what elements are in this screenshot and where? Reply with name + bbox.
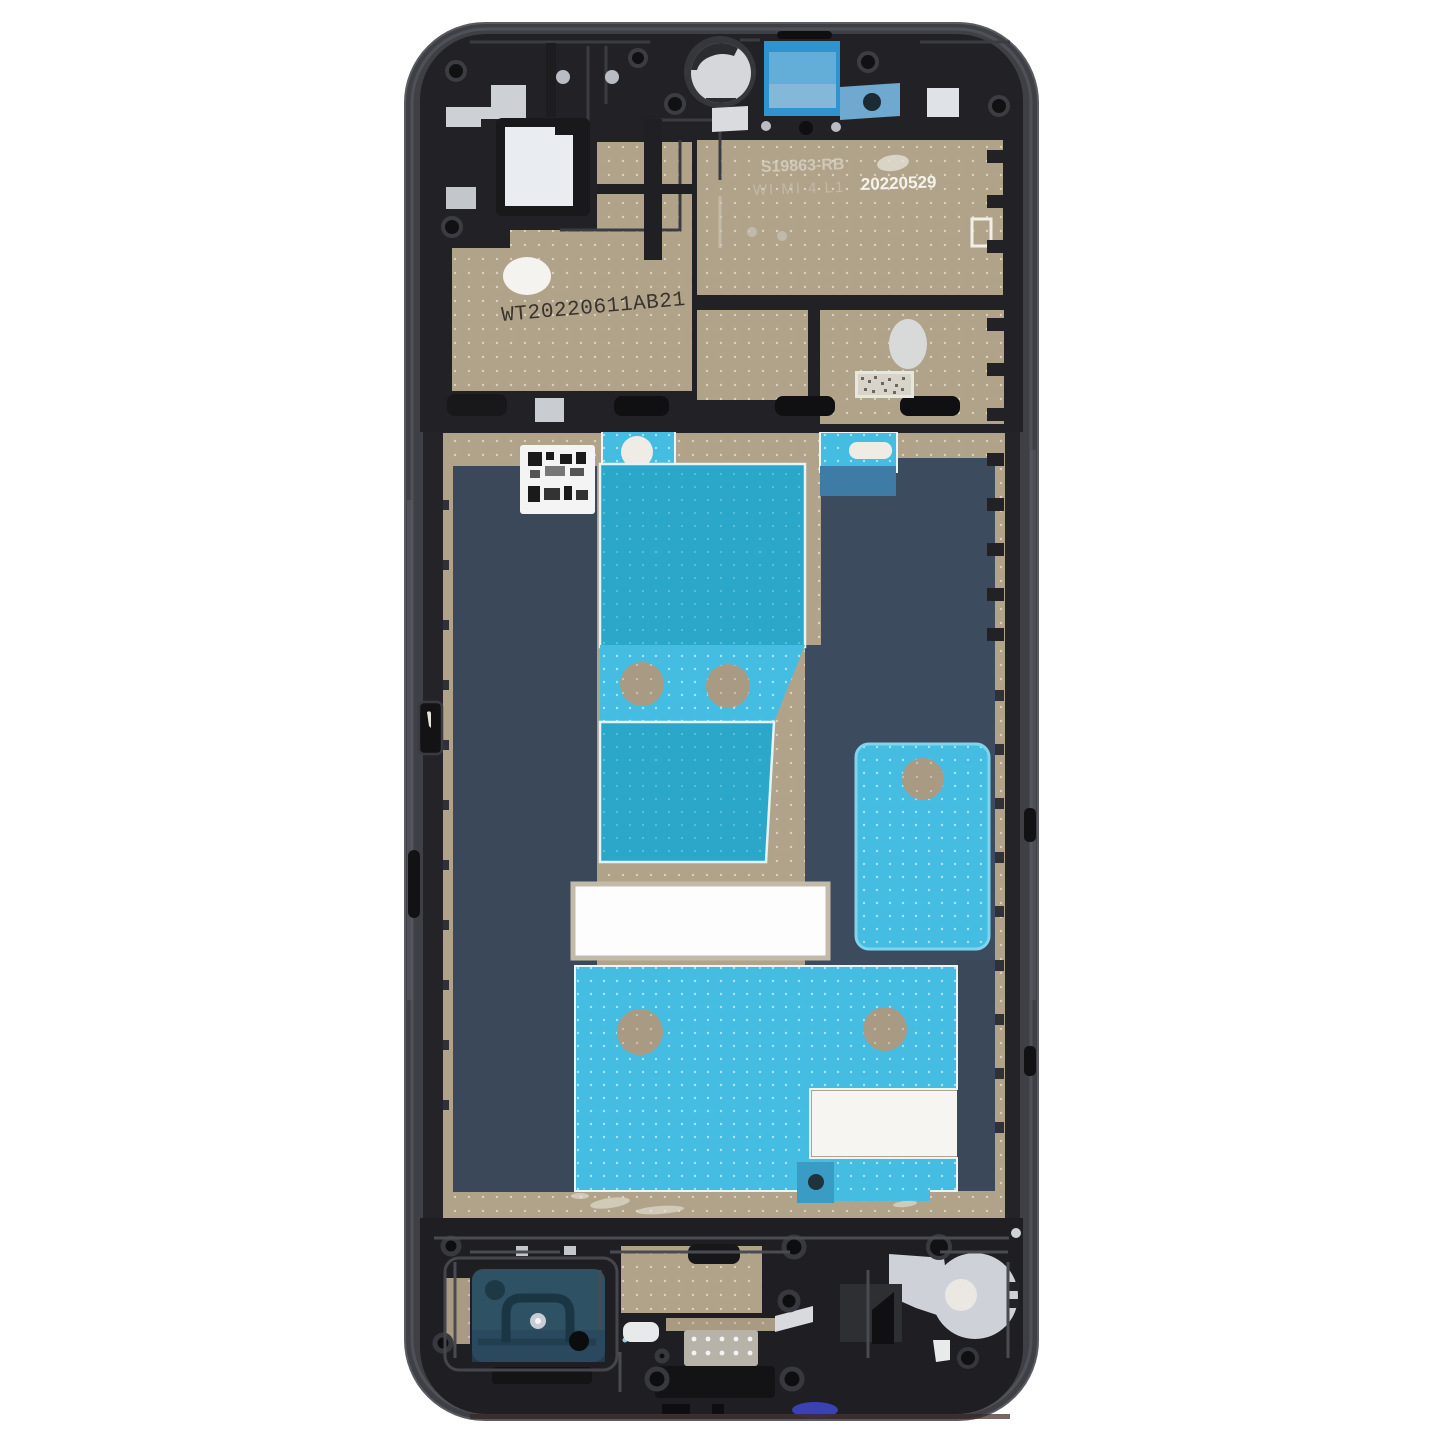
svg-text:20220529: 20220529 [860, 172, 936, 194]
svg-text:S19863-RB: S19863-RB [761, 156, 845, 176]
svg-text:WI MI 4 L1: WI MI 4 L1 [753, 179, 846, 199]
